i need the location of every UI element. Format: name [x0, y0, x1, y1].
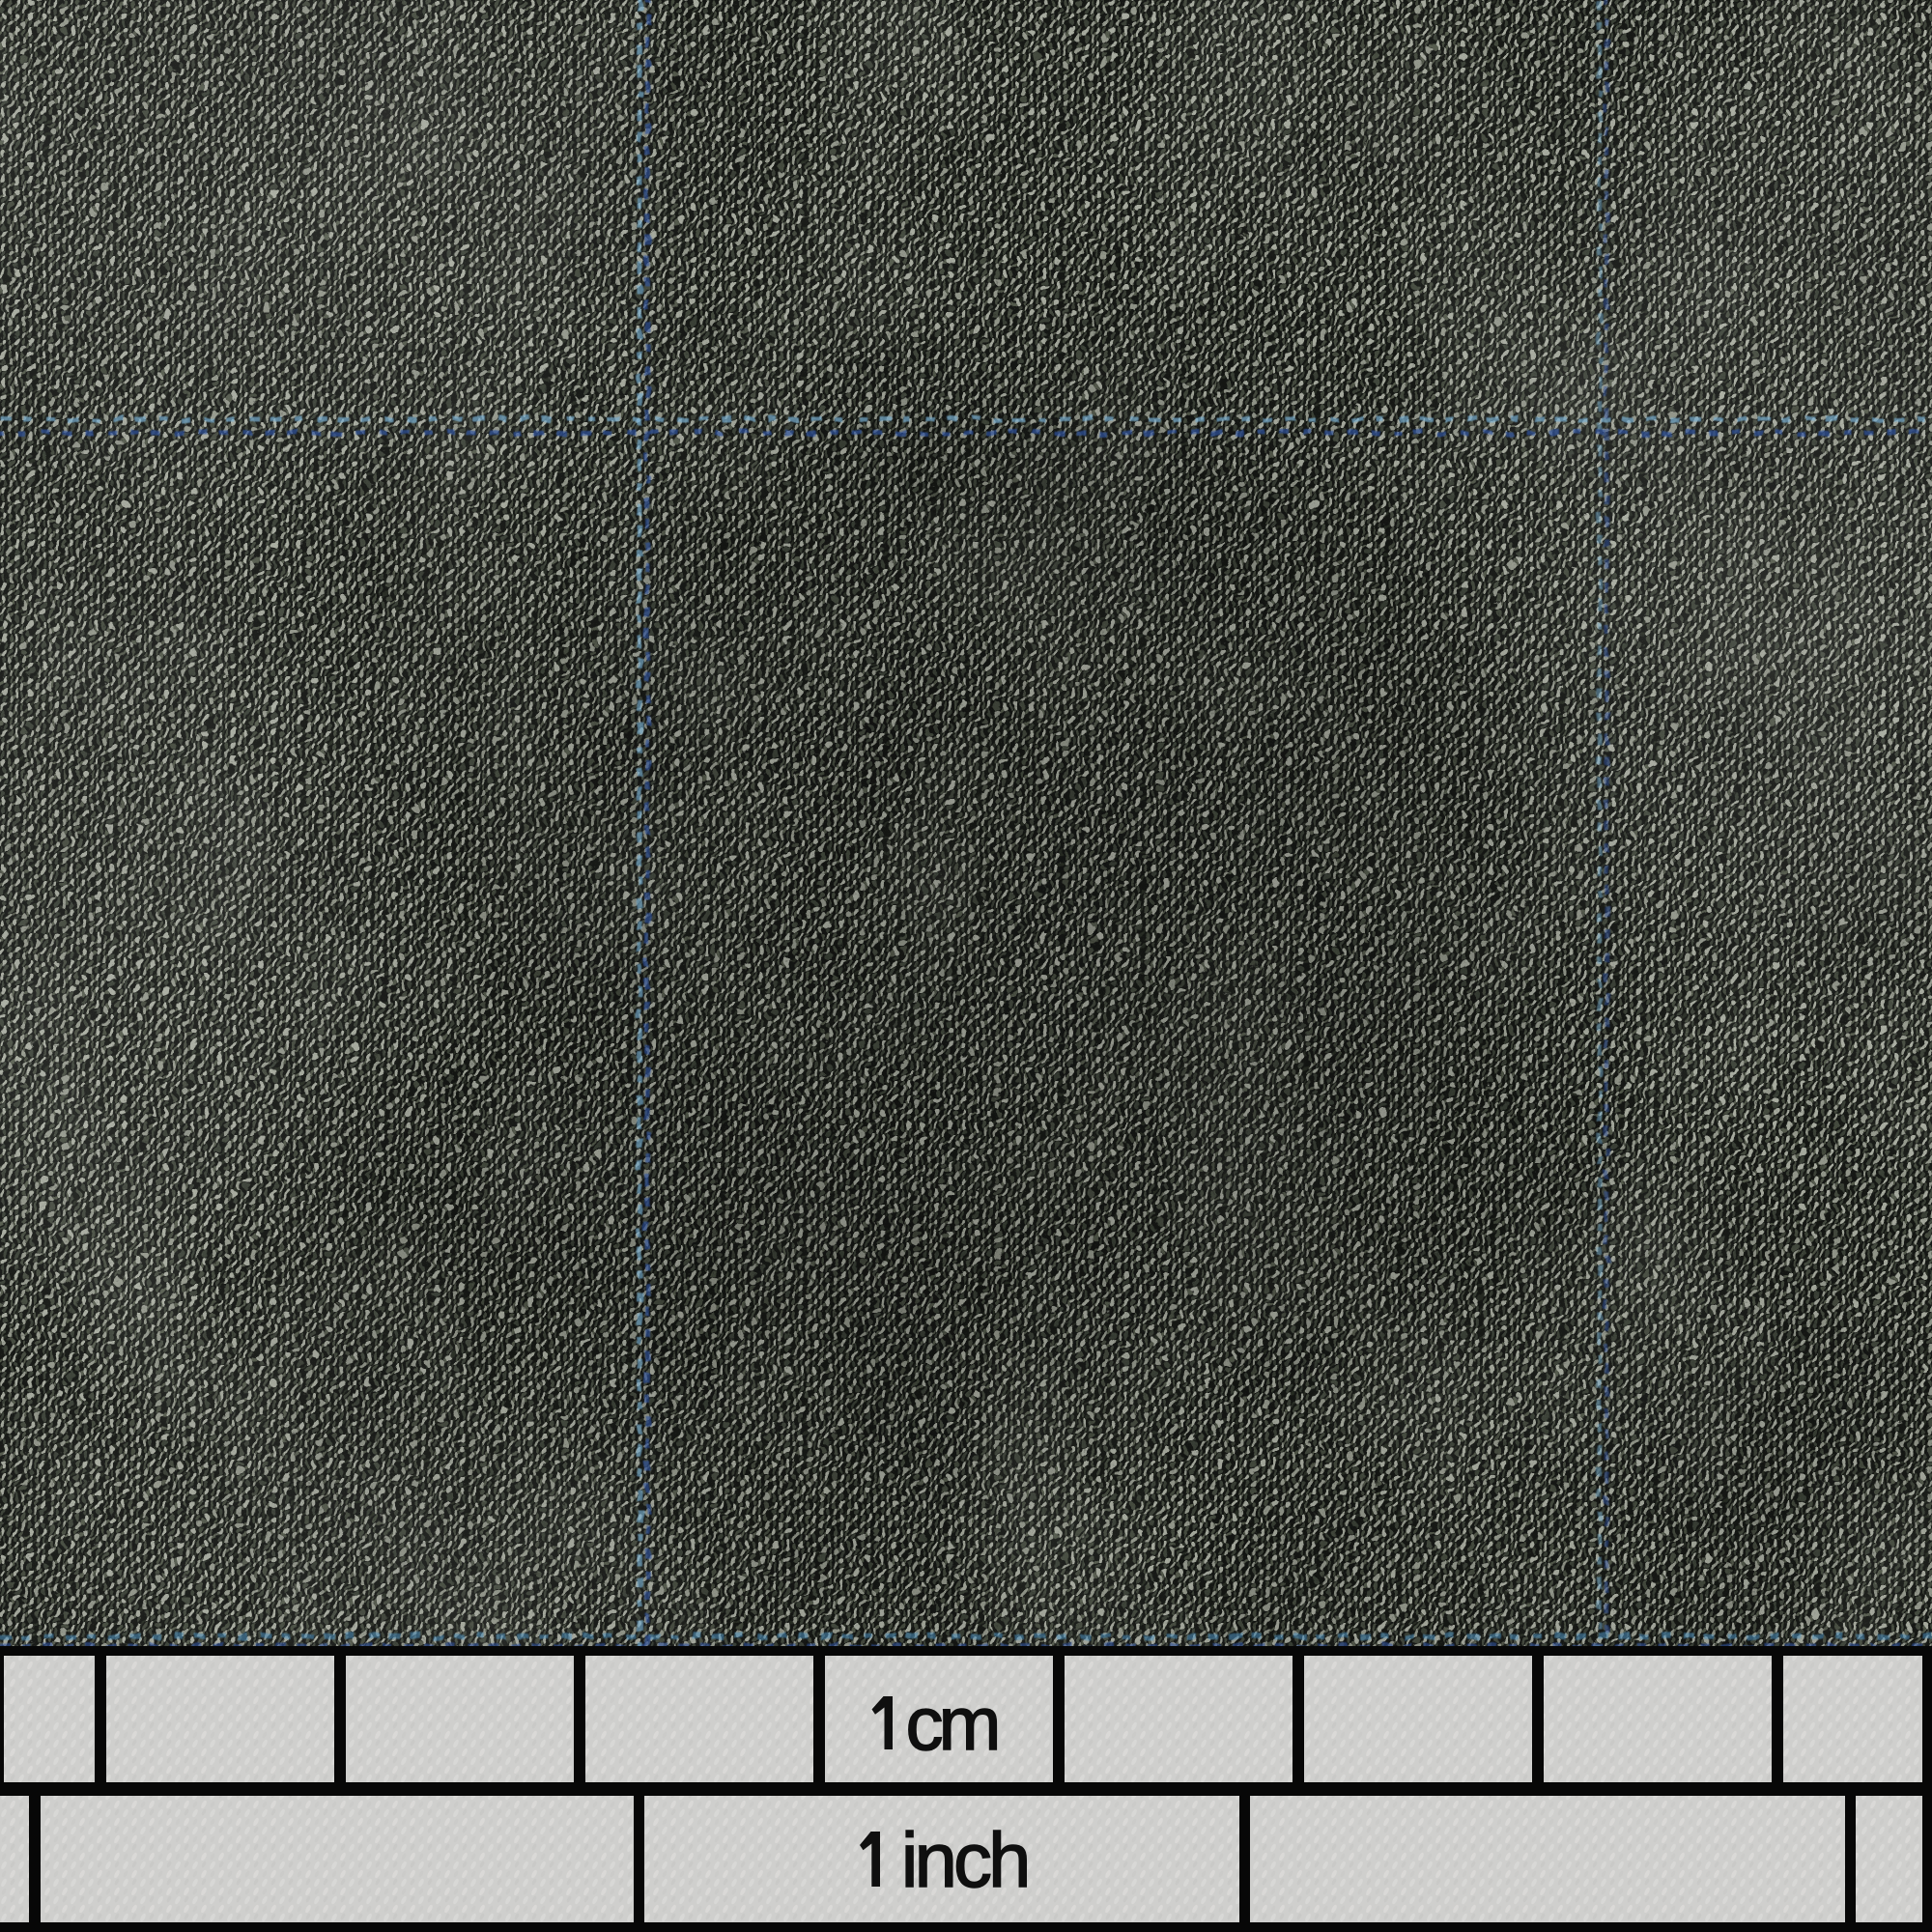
- svg-text:inch: inch: [901, 1817, 1028, 1903]
- svg-text:cm: cm: [906, 1681, 997, 1766]
